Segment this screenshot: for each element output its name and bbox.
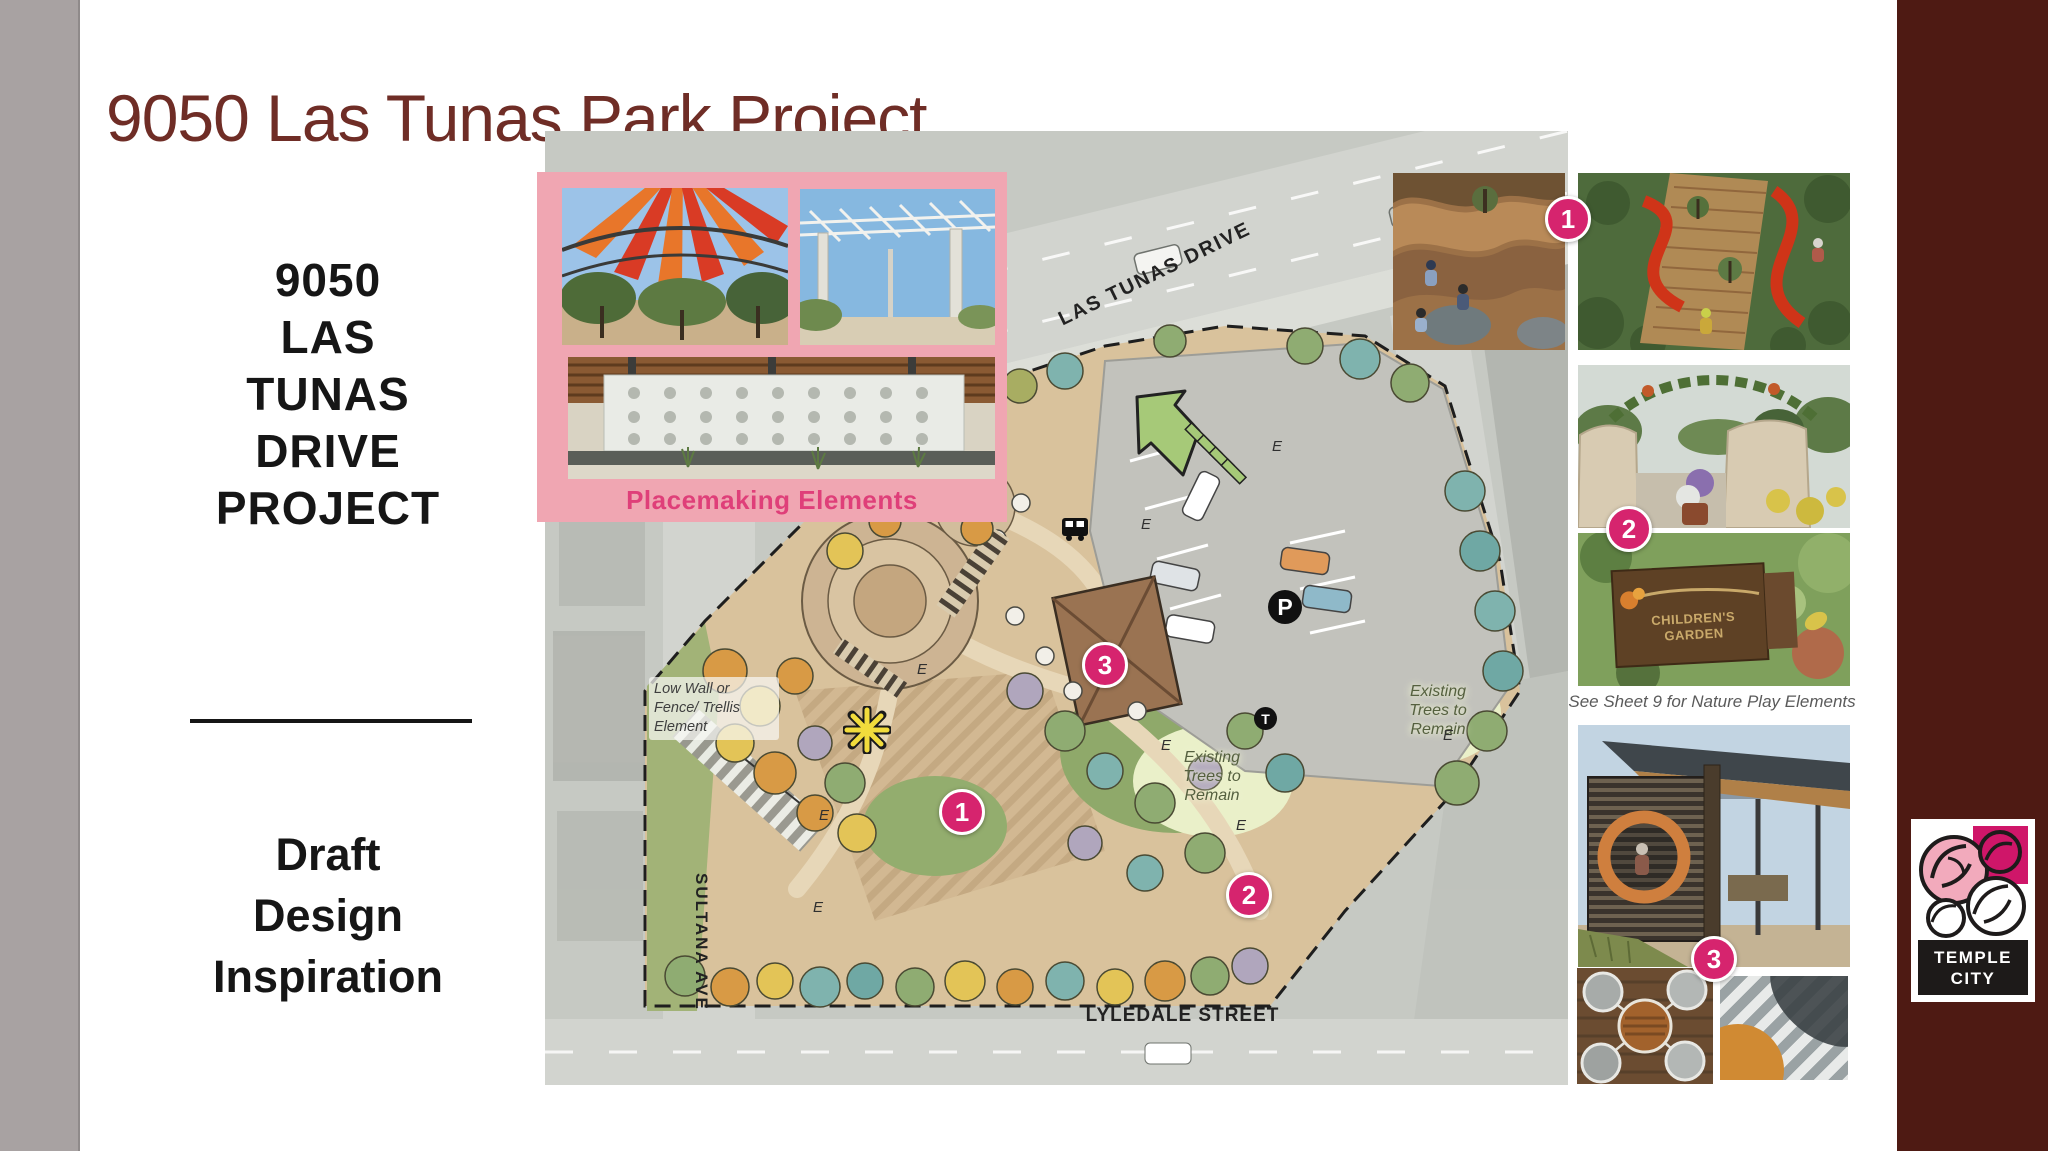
shade-sails-photo xyxy=(562,188,788,345)
inspiration-badge-3: 3 xyxy=(1691,936,1737,982)
inspiration-photo-red-benches xyxy=(1578,173,1850,350)
existing-tree-tag: E xyxy=(1236,817,1246,834)
existing-tree-tag: E xyxy=(1443,727,1453,744)
existing-tree-tag: E xyxy=(819,807,829,824)
subtitle-block: Draft Design Inspiration xyxy=(150,824,506,1007)
plan-marker-3: 3 xyxy=(1082,642,1128,688)
street-label-lyledale: LYLEDALE STREET xyxy=(1085,1005,1280,1027)
left-accent-band xyxy=(0,0,80,1151)
annotation-line: Element xyxy=(654,719,707,735)
existing-tree-tag: E xyxy=(813,899,823,916)
subtitle-line: Draft xyxy=(150,824,506,885)
slide: 9050 Las Tunas Park Project 9050 LAS TUN… xyxy=(0,0,2048,1151)
inspiration-photo-dragon-garden xyxy=(1578,365,1850,528)
annotation-line: Low Wall or xyxy=(654,681,729,697)
pergola-photo xyxy=(800,189,995,345)
parking-icon: P xyxy=(1268,590,1302,624)
placemaking-panel: Placemaking Elements xyxy=(537,172,1007,522)
subtitle-line: Design xyxy=(150,885,506,946)
plan-marker-1: 1 xyxy=(939,789,985,835)
project-line: DRIVE xyxy=(150,423,506,480)
inspiration-photo-striped-paving xyxy=(1720,976,1848,1080)
right-accent-band: TEMPLE CITY xyxy=(1897,0,2048,1151)
inspiration-photo-terraced-deck xyxy=(1393,173,1565,350)
sheet-note: See Sheet 9 for Nature Play Elements xyxy=(1566,692,1858,712)
temple-city-wordmark: TEMPLE CITY xyxy=(1918,940,2028,995)
street-label-sultana: SULTANA AVE xyxy=(691,873,711,1011)
divider-line xyxy=(190,719,472,723)
project-name-block: 9050 LAS TUNAS DRIVE PROJECT xyxy=(150,252,506,537)
existing-tree-tag: E xyxy=(1161,737,1171,754)
orange-paving-circle xyxy=(1720,1024,1784,1080)
temple-city-logo: TEMPLE CITY xyxy=(1911,819,2035,1002)
low-wall-annotation: Low Wall or Fence/ Trellis Element xyxy=(649,677,779,740)
plan-marker-2: 2 xyxy=(1226,872,1272,918)
annotation-line: Fence/ Trellis xyxy=(654,700,740,716)
inspiration-photo-wire-chairs xyxy=(1577,968,1713,1084)
inspiration-photo-childrens-garden-sign: CHILDREN'S GARDEN xyxy=(1578,533,1850,686)
subtitle-line: Inspiration xyxy=(150,946,506,1007)
existing-trees-label: Existing Trees to Remain xyxy=(1147,749,1277,806)
project-line: LAS xyxy=(150,309,506,366)
breeze-block-wall-photo xyxy=(568,357,995,479)
landmark-star-icon xyxy=(843,706,891,754)
existing-tree-tag: E xyxy=(1141,516,1151,533)
bus-icon xyxy=(1060,516,1090,542)
inspiration-badge-2: 2 xyxy=(1606,506,1652,552)
placemaking-caption: Placemaking Elements xyxy=(537,485,1007,516)
transit-icon: T xyxy=(1254,707,1277,730)
inspiration-photo-pavilion xyxy=(1578,725,1850,967)
existing-trees-label: Existing Trees to Remain xyxy=(1373,683,1503,740)
camellia-flower-icon xyxy=(1918,826,2028,940)
inspiration-badge-1: 1 xyxy=(1545,196,1591,242)
sign-text-line2: GARDEN xyxy=(1664,625,1724,643)
project-line: PROJECT xyxy=(150,480,506,537)
project-line: 9050 xyxy=(150,252,506,309)
existing-tree-tag: E xyxy=(1272,438,1282,455)
existing-tree-tag: E xyxy=(917,661,927,678)
project-line: TUNAS xyxy=(150,366,506,423)
